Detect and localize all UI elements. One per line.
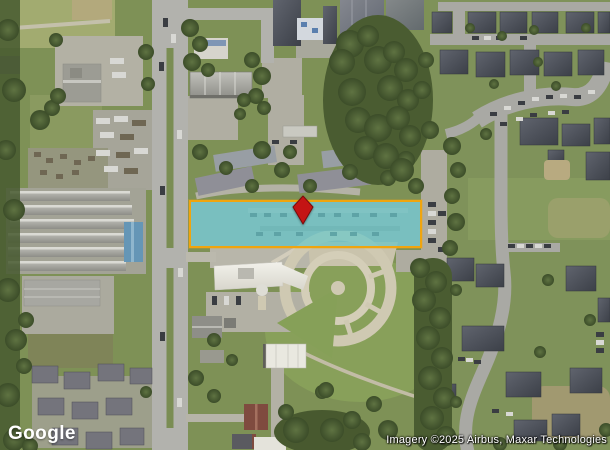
imagery-attribution: Imagery ©2025 Airbus, Maxar Technologies	[386, 434, 607, 446]
map-pin-shape	[293, 196, 313, 224]
map-pin[interactable]	[291, 195, 315, 226]
google-logo[interactable]: Google	[8, 423, 76, 445]
map-viewport[interactable]: Google Imagery ©2025 Airbus, Maxar Techn…	[0, 0, 610, 450]
